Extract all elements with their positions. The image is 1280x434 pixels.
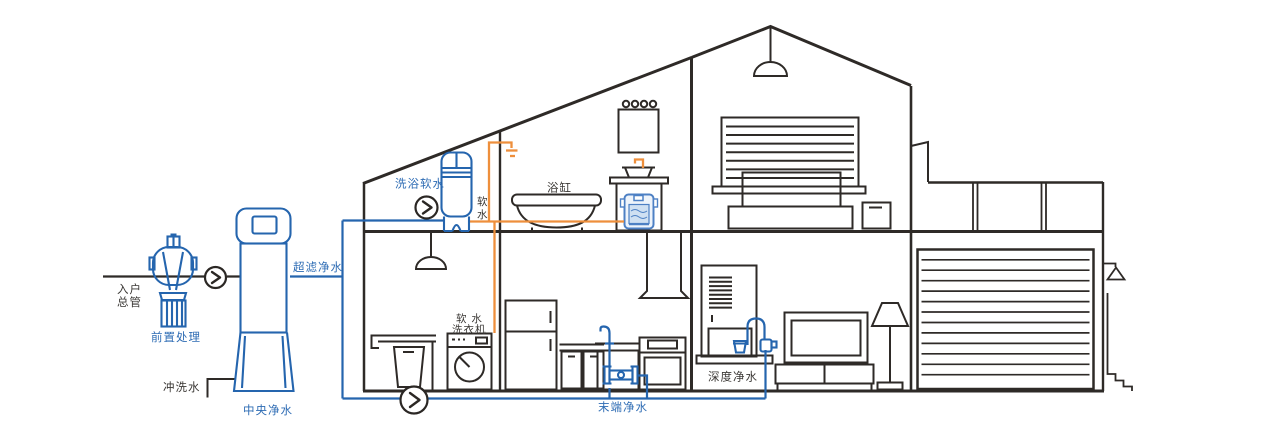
label-terminal-purifier: 末端净水 xyxy=(598,400,648,414)
floor-lamp xyxy=(872,303,908,390)
water-cup xyxy=(733,341,747,353)
bed xyxy=(729,173,853,229)
label-inlet-2: 总管 xyxy=(117,295,142,309)
label-washer-2: 洗衣机 xyxy=(452,323,487,336)
window-blinds xyxy=(713,118,866,194)
label-ultrafiltration: 超滤净水 xyxy=(293,260,343,274)
central-purifier xyxy=(234,209,294,392)
bathtub xyxy=(512,195,601,232)
label-bath-softener: 洗浴软水 xyxy=(395,177,445,191)
tv-with-stand xyxy=(776,313,874,390)
label-soft-water-1: 软 xyxy=(477,195,489,208)
label-prefilter: 前置处理 xyxy=(151,330,201,344)
booster-valve-softener xyxy=(416,197,438,219)
label-central-purifier: 中央净水 xyxy=(243,403,293,417)
house-water-system-diagram: 入户 总管 前置处理 中央净水 冲洗水 超滤净水 洗浴软水 软 水 浴缸 软 水… xyxy=(0,0,1280,434)
booster-valve-bottom xyxy=(401,387,428,414)
booster-valve-inlet xyxy=(205,267,226,288)
stove-with-hood xyxy=(640,233,689,390)
nightstand xyxy=(863,203,891,229)
diagram-canvas: 入户 总管 前置处理 中央净水 冲洗水 超滤净水 洗浴软水 软 水 浴缸 软 水… xyxy=(0,0,1280,434)
washing-machine xyxy=(448,334,492,390)
label-deep-purifier: 深度净水 xyxy=(708,370,758,384)
pre-filter xyxy=(150,235,197,327)
terminal-purifier-unit xyxy=(603,367,639,384)
shower-head xyxy=(506,151,518,157)
label-soft-water-2: 水 xyxy=(477,209,489,221)
fridge xyxy=(506,301,557,390)
bath-softener-tank xyxy=(442,153,472,232)
flush-drain-pipe xyxy=(208,379,237,398)
outdoor-steps xyxy=(1108,293,1133,391)
garage-rolling-door xyxy=(918,250,1094,390)
laundry-sink xyxy=(372,336,437,391)
kitchen-faucet xyxy=(601,327,615,345)
pendant-lamp-laundry xyxy=(416,233,446,269)
house-structure xyxy=(363,27,1104,392)
label-flush-water: 冲洗水 xyxy=(163,380,201,394)
mirror-with-lights xyxy=(619,101,659,153)
pendant-lamp-bedroom xyxy=(754,27,787,76)
blue-water-pipes xyxy=(290,221,766,399)
deep-purifier-unit xyxy=(761,340,777,352)
orange-soft-water-pipes xyxy=(470,143,624,334)
label-inlet-1: 入户 xyxy=(117,282,142,296)
outdoor-lamp xyxy=(1103,264,1125,280)
under-sink-heater xyxy=(621,195,658,229)
label-bathtub: 浴缸 xyxy=(547,181,572,195)
